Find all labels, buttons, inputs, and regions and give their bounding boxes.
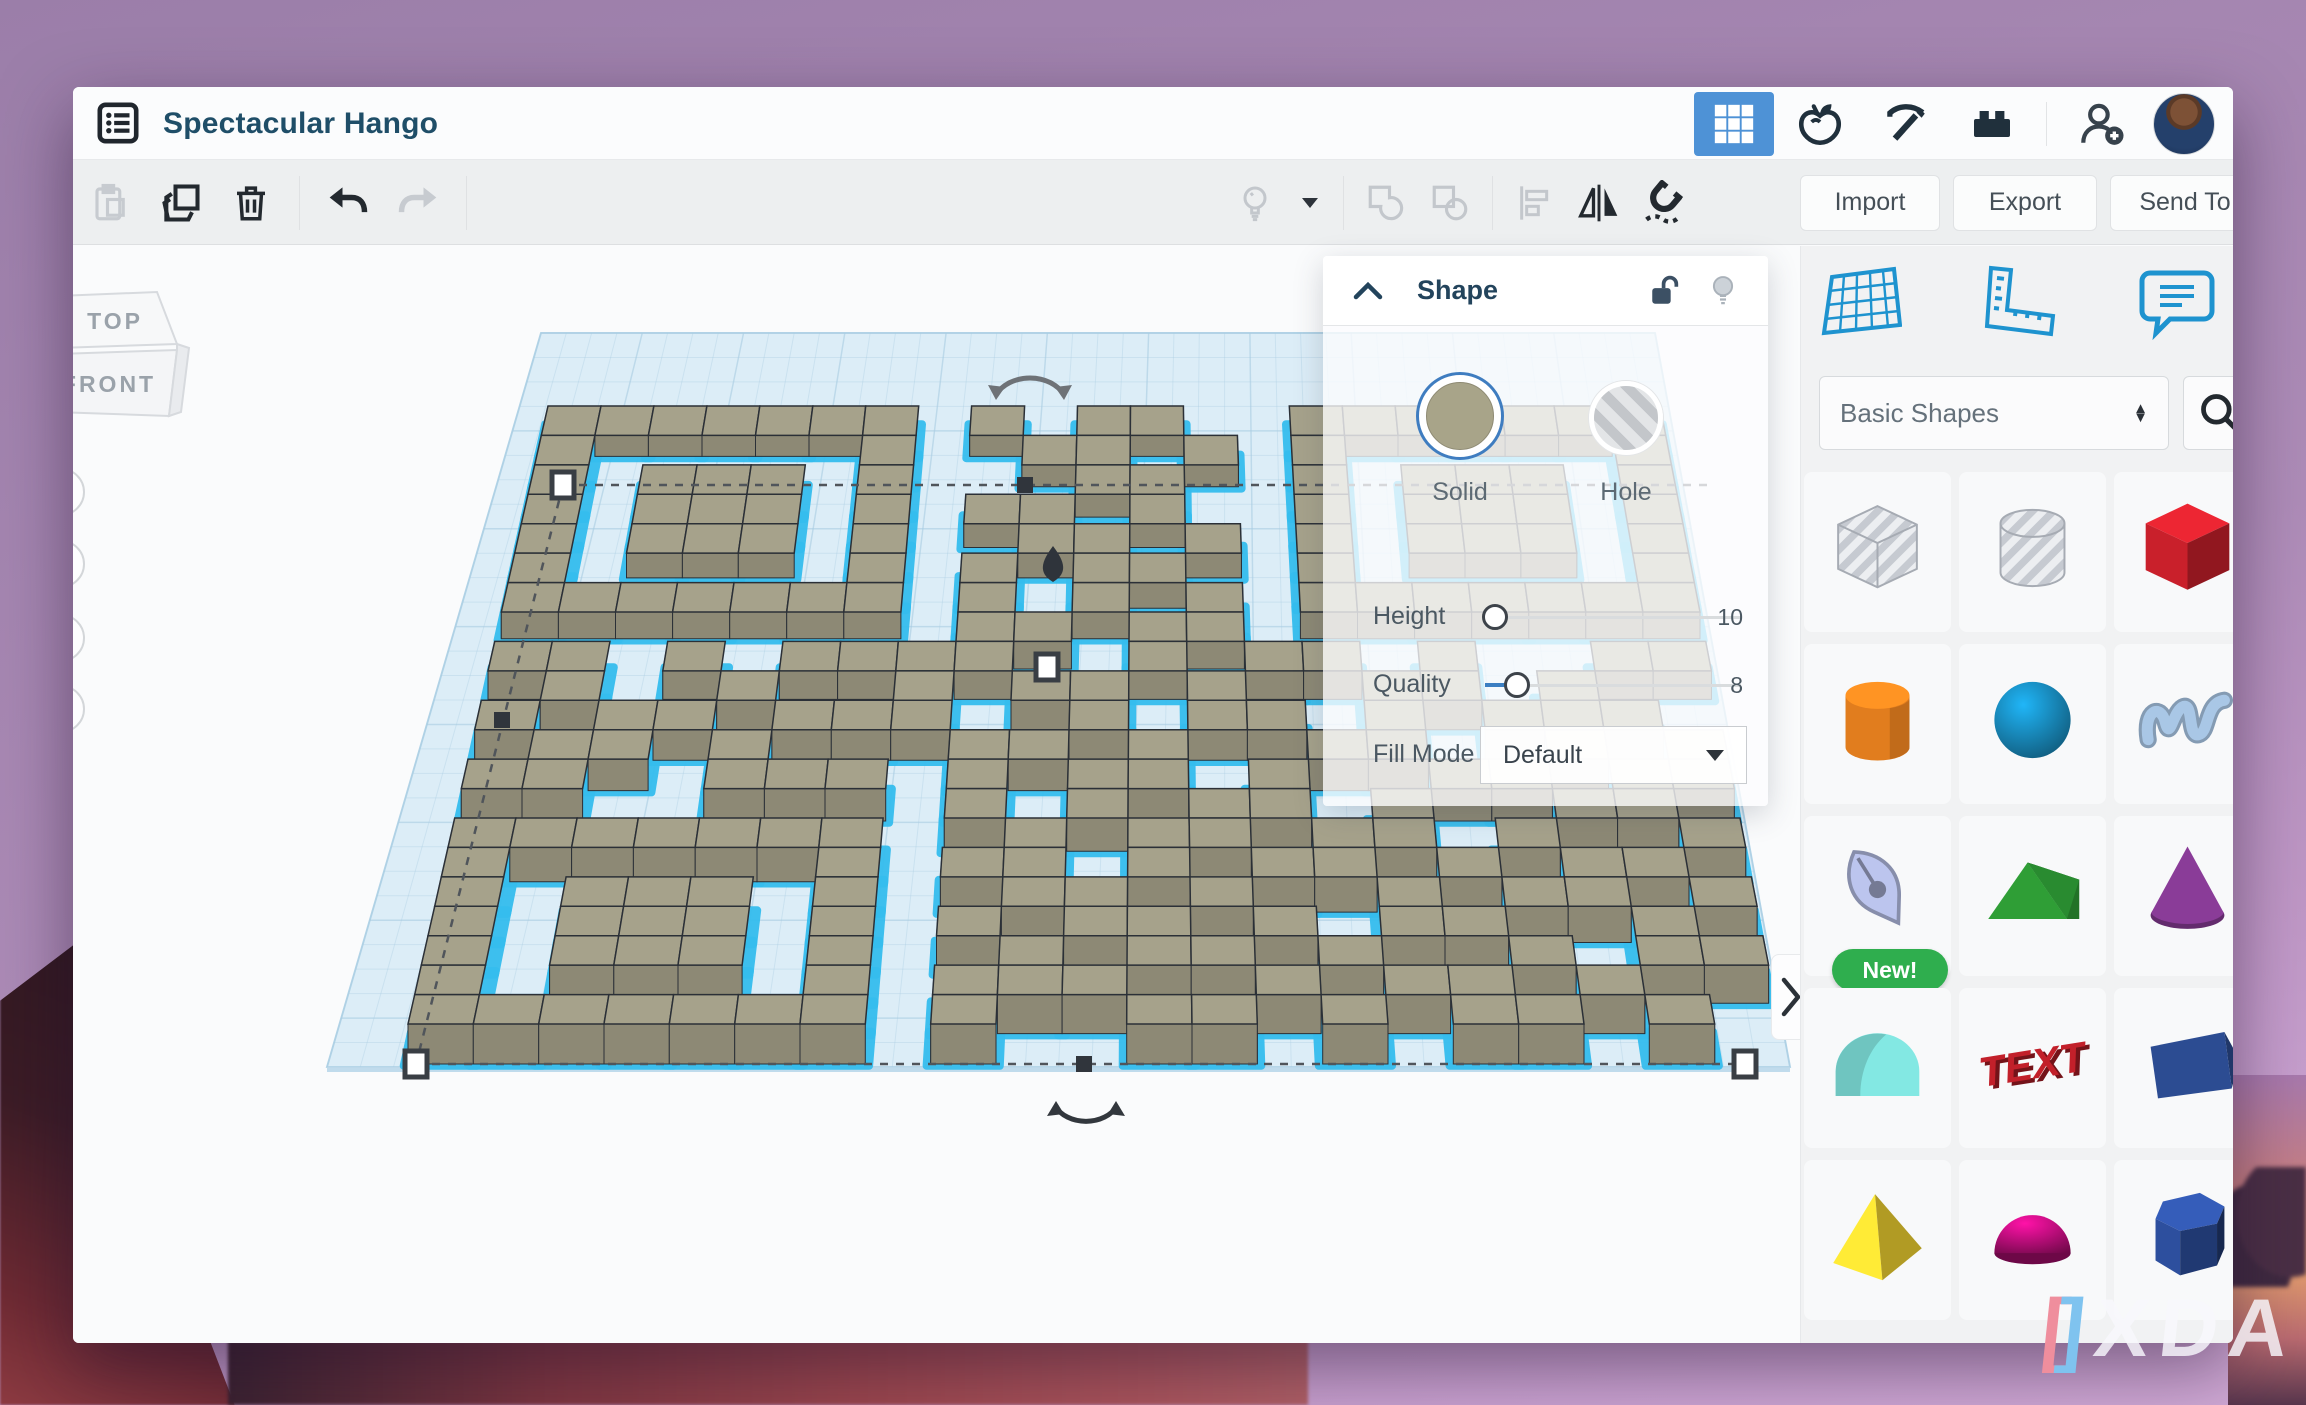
shape-sphere-icon	[1971, 656, 2094, 779]
export-button[interactable]: Export	[1953, 175, 2097, 231]
height-slider-handle[interactable]	[1482, 604, 1508, 630]
topbar-mode-switcher	[1694, 87, 2215, 160]
edge-handle[interactable]	[1017, 477, 1033, 493]
shape-text[interactable]: TEXTTEXT	[1959, 988, 2106, 1148]
xda-watermark: [ ] XDA	[2037, 1282, 2303, 1376]
select-arrows-icon: ▲▼	[2133, 404, 2148, 423]
shape-scribble-icon	[2126, 656, 2233, 779]
lego-brick-icon	[1968, 100, 2016, 148]
shape-box-hole-icon	[1816, 484, 1939, 607]
share-collaborate-button[interactable]	[2061, 92, 2141, 156]
shape-category-value: Basic Shapes	[1840, 398, 1999, 429]
height-value: 10	[1681, 604, 1743, 631]
titlebar: Spectacular Hango	[73, 87, 2233, 160]
shape-roof[interactable]	[1959, 816, 2106, 976]
shape-cylinder-icon	[1816, 656, 1939, 779]
design-menu-button[interactable]	[95, 100, 141, 146]
snap-button[interactable]	[1641, 181, 1685, 225]
shape-text-icon: TEXTTEXT	[1971, 1000, 2094, 1123]
edge-handle[interactable]	[494, 712, 510, 728]
search-icon	[2198, 391, 2233, 435]
view-cube[interactable]: TOP FRONT	[73, 282, 193, 478]
svg-text:TEXT: TEXT	[1976, 1032, 2092, 1096]
toolbar-io-group: Import Export Send To	[1800, 160, 2233, 245]
shape-roof-icon	[1971, 828, 2094, 951]
show-all-button[interactable]	[1233, 181, 1277, 225]
workplane-icon	[1820, 263, 1902, 345]
shape-sphere[interactable]	[1959, 644, 2106, 804]
shape-scribble[interactable]	[2114, 644, 2233, 804]
quality-value: 8	[1681, 672, 1743, 699]
main-area: TOP FRONT	[73, 246, 2233, 1343]
undo-icon	[326, 181, 370, 225]
shape-pyramid-icon	[1816, 1172, 1939, 1295]
simlab-mode-button[interactable]	[1780, 92, 1860, 156]
rotate-handle-bottom[interactable]	[1047, 1101, 1125, 1121]
scale-handle[interactable]	[1036, 654, 1058, 680]
workplane-tool[interactable]	[1815, 258, 1907, 350]
magnet-icon	[1641, 180, 1685, 226]
ungroup-button[interactable]	[1428, 181, 1472, 225]
shape-cylinder[interactable]	[1804, 644, 1951, 804]
chevron-right-icon	[1780, 977, 1800, 1017]
group-button[interactable]	[1364, 181, 1408, 225]
collapse-sidebar-button[interactable]	[1771, 954, 1800, 1040]
quality-slider-handle[interactable]	[1504, 672, 1530, 698]
minecraft-pickaxe-icon	[1881, 99, 1931, 149]
desktop: Spectacular Hango	[0, 0, 2306, 1405]
toolbar-divider	[299, 176, 300, 230]
shapes-sidebar: Basic Shapes ▲▼ New!TEXTTEXT	[1800, 246, 2233, 1343]
ruler-tool[interactable]	[1973, 258, 2065, 350]
shape-round-roof-icon	[1816, 1000, 1939, 1123]
shape-pyramid[interactable]	[1804, 1160, 1951, 1320]
minecraft-mode-button[interactable]	[1866, 92, 1946, 156]
shape-inspector-panel: Shape Solid Hole	[1323, 256, 1768, 806]
shape-panel-title: Shape	[1417, 275, 1648, 306]
trash-icon	[230, 182, 272, 224]
shape-round-roof[interactable]	[1804, 988, 1951, 1148]
solid-swatch[interactable]	[1416, 372, 1504, 460]
paste-button[interactable]	[89, 181, 133, 225]
scale-handle[interactable]	[552, 472, 574, 498]
group-icon	[1365, 182, 1407, 224]
send-to-button[interactable]: Send To	[2110, 175, 2233, 231]
wallpaper-trees	[2228, 1167, 2306, 1287]
viewcube-top-face[interactable]: TOP	[87, 308, 143, 334]
shape-box[interactable]	[2114, 472, 2233, 632]
topbar-divider	[2046, 102, 2047, 146]
toolbar-divider	[1343, 176, 1344, 230]
redo-button[interactable]	[396, 181, 440, 225]
notes-icon	[2136, 263, 2218, 345]
shape-polygon-icon	[2126, 1172, 2233, 1295]
blocks-grid-icon	[1711, 101, 1757, 147]
shape-panel-header: Shape	[1323, 256, 1768, 326]
shape-category-select[interactable]: Basic Shapes ▲▼	[1819, 376, 2169, 450]
shape-box-icon	[2126, 484, 2233, 607]
undo-button[interactable]	[326, 181, 370, 225]
notes-tool[interactable]	[2131, 258, 2223, 350]
scale-handle[interactable]	[405, 1051, 427, 1077]
watermark-text: XDA	[2090, 1282, 2303, 1376]
ruler-icon	[1977, 262, 2061, 346]
toolbar-object-group	[1233, 160, 1685, 245]
copy-button[interactable]	[159, 181, 203, 225]
caret-down-icon	[1706, 750, 1724, 761]
toolbar: Import Export Send To	[73, 160, 2233, 245]
fill-mode-value: Default	[1503, 741, 1582, 770]
edge-handle[interactable]	[1076, 1056, 1092, 1072]
fill-mode-select[interactable]: Default	[1480, 726, 1747, 784]
quality-label: Quality	[1373, 670, 1451, 699]
shape-sketch[interactable]: New!	[1804, 816, 1951, 976]
scale-handle[interactable]	[1734, 1051, 1756, 1077]
viewcube-front-face[interactable]: FRONT	[73, 371, 156, 397]
toolbar-divider	[1492, 176, 1493, 230]
show-all-dropdown[interactable]	[1297, 181, 1323, 225]
solid-color	[1426, 382, 1494, 450]
toolbar-divider	[466, 176, 467, 230]
height-label: Height	[1373, 602, 1445, 631]
design-title: Spectacular Hango	[163, 87, 438, 160]
visibility-bulb-icon[interactable]	[1708, 274, 1738, 308]
redo-icon	[396, 181, 440, 225]
avatar[interactable]	[2153, 93, 2215, 155]
chevron-down-icon	[1301, 197, 1319, 209]
hole-swatch[interactable]	[1589, 381, 1663, 455]
shape-cone-icon	[2126, 828, 2233, 951]
fill-mode-label: Fill Mode	[1373, 740, 1474, 769]
shape-wedge-icon	[2126, 1000, 2233, 1123]
align-icon	[1515, 183, 1555, 223]
shape-search-button[interactable]	[2183, 376, 2233, 450]
shape-sketch-icon	[1816, 828, 1939, 951]
mirror-flip-icon	[1577, 180, 1621, 226]
shape-cylinder-hole[interactable]	[1959, 472, 2106, 632]
menu-list-icon	[95, 100, 141, 146]
bricks-mode-button[interactable]	[1952, 92, 2032, 156]
shape-cylinder-hole-icon	[1971, 484, 2094, 607]
blocks-mode-button[interactable]	[1694, 92, 1774, 156]
toolbar-edit-group	[89, 160, 467, 245]
align-button[interactable]	[1513, 181, 1557, 225]
flip-button[interactable]	[1577, 181, 1621, 225]
simlab-apple-icon	[1795, 99, 1845, 149]
delete-button[interactable]	[229, 181, 273, 225]
shape-half-sphere-icon	[1971, 1172, 2094, 1295]
shape-wedge[interactable]	[2114, 988, 2233, 1148]
unlock-icon[interactable]	[1648, 274, 1682, 308]
shapes-grid: New!TEXTTEXT	[1804, 472, 2233, 1320]
paste-icon	[90, 182, 132, 224]
solid-label: Solid	[1395, 478, 1525, 507]
shape-panel-body: Solid Hole Height 10 Quality 8 Fill Mode…	[1323, 326, 1768, 806]
shape-cone[interactable]	[2114, 816, 2233, 976]
hole-label: Hole	[1561, 478, 1691, 507]
import-button[interactable]: Import	[1800, 175, 1940, 231]
new-badge: New!	[1832, 949, 1948, 991]
wallpaper-rock-strip	[228, 1341, 1308, 1405]
lightbulb-icon	[1235, 183, 1275, 223]
shape-box-hole[interactable]	[1804, 472, 1951, 632]
ungroup-icon	[1429, 182, 1471, 224]
add-person-icon	[2076, 99, 2126, 149]
copy-icon	[159, 181, 203, 225]
tinkercad-window: Spectacular Hango	[73, 87, 2233, 1343]
collapse-chevron-icon[interactable]	[1353, 281, 1383, 301]
